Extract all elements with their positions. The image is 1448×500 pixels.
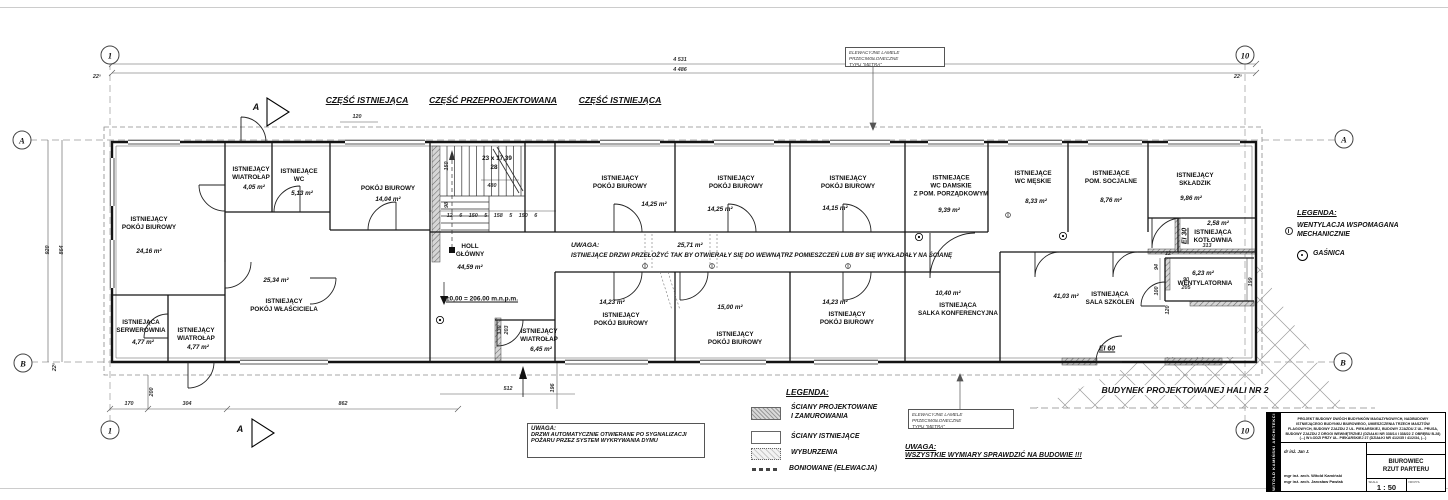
room-biurowy-a: ISTNIEJĄCY POKÓJ BIUROWY xyxy=(593,175,647,191)
scale-cell: SKALA 1 : 50 xyxy=(1366,478,1406,491)
scale-value: 1 : 50 xyxy=(1367,483,1406,492)
dim-120: 120 xyxy=(353,114,362,120)
room-salka-area: 10,40 m² xyxy=(935,290,960,298)
title-block: WITOLD KAMIŃSKI ARCHITEKCI PROJEKT BUDOW… xyxy=(1266,412,1446,492)
dim-top-inner: 4 486 xyxy=(673,67,687,73)
grid-bubble-a-right: A xyxy=(1335,130,1354,149)
dim-stair-row: 12 6 150 5 158 5 150 6 xyxy=(447,213,537,219)
room-wc-top-area: 5,13 m² xyxy=(291,190,313,198)
dim-512: 512 xyxy=(504,386,513,392)
room-biurowy-c: ISTNIEJĄCY POKÓJ BIUROWY xyxy=(821,175,875,191)
corridor-area: 25,71 m² xyxy=(677,242,702,250)
floor-plan-page: 1 10 1 10 A B A B A A CZĘŚĆ ISTNIEJĄCA C… xyxy=(0,0,1448,500)
room-biurowy-e: ISTNIEJĄCY POKÓJ BIUROWY xyxy=(708,331,762,347)
project-title: PROJEKT BUDOWY DWÓCH BUDYNKÓW MAGAZYNOWY… xyxy=(1280,413,1445,442)
lamele-callout-top: ELEWACYJNE LAMELE PRZECIWSŁONECZNE TYPU … xyxy=(845,47,945,67)
section-a-label-bottom: A xyxy=(237,424,244,434)
room-wlasciciela-area: 25,34 m² xyxy=(263,277,288,285)
grid-bubble-b-left: B xyxy=(14,354,33,373)
dim-stair-count: 28 xyxy=(490,164,497,172)
dim-stair-150: 150 xyxy=(444,162,450,171)
dim-862: 862 xyxy=(339,401,348,407)
dim-vent-12: 12 xyxy=(1165,251,1171,257)
room-wc-meskie-area: 8,33 m² xyxy=(1025,198,1047,206)
room-wc-damskie-area: 9,39 m² xyxy=(938,207,960,215)
dim-stair-480: 480 xyxy=(488,183,497,189)
room-serwerownia: ISTNIEJĄCA SERWEROWNIA xyxy=(116,319,165,335)
room-pokoj-1404-area: 14,04 m² xyxy=(375,196,400,204)
drawing-number-label: NR RYS. xyxy=(1409,480,1421,484)
room-biurowy-c-area: 14,15 m² xyxy=(822,205,847,213)
room-wiatrolap-top-area: 4,05 m² xyxy=(243,184,265,192)
plan-linework xyxy=(0,0,1448,500)
dim-left-inner: 864 xyxy=(59,246,65,255)
dim-vent-120: 120 xyxy=(1165,306,1171,315)
legend-walls-existing: ŚCIANY ISTNIEJĄCE xyxy=(791,433,859,442)
dim-304: 304 xyxy=(183,401,192,407)
legend-demolition: WYBURZENIA xyxy=(791,449,838,458)
grid-bubble-1-bottom: 1 xyxy=(101,421,120,440)
legend-walls-projected: ŚCIANY PROJEKTOWANE I ZAMUROWANIA xyxy=(791,404,877,421)
section-a-label-top: A xyxy=(253,102,260,112)
room-kotlownia-area: 2,58 m² xyxy=(1207,220,1229,228)
room-kotlownia: ISTNIEJĄCA KOTŁOWNIA xyxy=(1194,229,1233,245)
room-pom-socjalne-area: 8,76 m² xyxy=(1100,197,1122,205)
legend-vent-label: WENTYLACJA WSPOMAGANA MECHANICZNIE xyxy=(1297,222,1399,239)
legend-rusticated: BONIOWANE (ELEWACJA) xyxy=(789,465,877,474)
swatch-walls-existing xyxy=(751,431,781,444)
swatch-rusticated xyxy=(752,468,780,471)
room-pokoj-biurowy-24: ISTNIEJĄCY POKÓJ BIUROWY xyxy=(122,216,176,232)
room-sala-szkolen-area: 41,03 m² xyxy=(1053,293,1078,301)
level-note: ±0,00 = 206.00 m.n.p.m. xyxy=(446,296,518,303)
room-wiatrolap-left-area: 4,77 m² xyxy=(187,344,209,352)
extinguisher-symbol-icon xyxy=(1297,250,1308,261)
designers-2-3: mgr inż. arch. Witold Kamiński mgr inż. … xyxy=(1284,473,1343,485)
designers-cell: dr inż. Jan J. mgr inż. arch. Witold Kam… xyxy=(1280,442,1366,491)
room-wc-top: ISTNIEJĄCE WC xyxy=(280,168,317,184)
header-existing-right: CZĘŚĆ ISTNIEJĄCA xyxy=(579,95,662,105)
dim-wall-left-bottom: 22⁵ xyxy=(52,363,58,371)
dim-door-203: 203 xyxy=(504,326,510,335)
grid-bubble-b-right: B xyxy=(1334,353,1353,372)
dim-vent-94: 94 xyxy=(1154,264,1160,270)
room-biurowy-b: ISTNIEJĄCY POKÓJ BIUROWY xyxy=(709,175,763,191)
room-biurowy-b-area: 14,25 m² xyxy=(707,206,732,214)
dim-left-outer: 920 xyxy=(45,246,51,255)
room-sala-szkolen: ISTNIEJĄCA SALA SZKOLEŃ xyxy=(1086,291,1135,307)
room-biurowy-f: ISTNIEJĄCY POKÓJ BIUROWY xyxy=(820,311,874,327)
grid-bubble-a-left: A xyxy=(13,131,32,150)
header-existing-left: CZĘŚĆ ISTNIEJĄCA xyxy=(326,95,409,105)
fire-ei60-label: EI 60 xyxy=(1099,346,1115,353)
swatch-walls-projected xyxy=(751,407,781,420)
room-skladzik: ISTNIEJĄCY SKŁADZIK xyxy=(1176,172,1213,188)
dim-stair-run: 23 x 17,39 xyxy=(482,155,512,163)
legend-extinguisher-label: GAŚNICA xyxy=(1313,250,1345,259)
entrance-arrow xyxy=(519,366,527,397)
grid-bubble-10-bottom: 10 xyxy=(1236,421,1255,440)
check-note-body: WSZYSTKIE WYMIARY SPRAWDZIĆ NA BUDOWIE !… xyxy=(905,452,1082,459)
room-wentylatornia-area: 6,23 m² xyxy=(1192,270,1214,278)
room-wc-damskie: ISTNIEJĄCE WC DAMSKIE Z POM. PORZĄDKOWYM xyxy=(914,175,989,200)
designer-1: dr inż. Jan J. xyxy=(1284,449,1309,454)
room-wiatrolap-mid: ISTNIEJĄCY WIATROŁAP xyxy=(520,328,558,344)
object-cell xyxy=(1366,442,1445,454)
header-redesigned: CZĘŚĆ PRZEPROJEKTOWANA xyxy=(429,95,557,105)
room-serwerownia-area: 4,77 m² xyxy=(132,339,154,347)
drawing-number-cell: NR RYS. xyxy=(1406,478,1445,491)
dim-wall-top-left: 22⁵ xyxy=(93,74,101,80)
room-biurowy-d-area: 14,23 m² xyxy=(599,299,624,307)
dim-vent-100: 100 xyxy=(1154,287,1160,296)
check-note-title: UWAGA: xyxy=(905,442,936,451)
hala-nr2-label: BUDYNEK PROJEKTOWANEJ HALI NR 2 xyxy=(1100,385,1271,395)
room-salka: ISTNIEJĄCA SALKA KONFERENCYJNA xyxy=(918,302,998,318)
dim-170: 170 xyxy=(125,401,134,407)
doors-note-title: UWAGA: xyxy=(571,242,599,249)
dim-stair-98: 98 xyxy=(444,202,450,208)
grid-bubble-10-top: 10 xyxy=(1236,46,1255,65)
section-a-triangle-bottom xyxy=(252,419,274,447)
lamele-callout-bottom: ELEWACYJNE LAMELE PRZECIWSŁONECZNE TYPU … xyxy=(908,409,1014,429)
auto-doors-note-body: DRZWI AUTOMATYCZNIE OTWIERANE PO SYGNALI… xyxy=(531,432,701,444)
legend-right-title: LEGENDA: xyxy=(1297,208,1337,217)
dim-door-130: 130 xyxy=(497,326,503,335)
auto-doors-note-box: UWAGA: DRZWI AUTOMATYCZNIE OTWIERANE PO … xyxy=(527,423,705,458)
swatch-demolition xyxy=(751,448,781,460)
room-wlasciciela: ISTNIEJĄCY POKÓJ WŁAŚCICIELA xyxy=(250,298,318,314)
vent-markers xyxy=(643,213,1011,269)
room-pom-socjalne: ISTNIEJĄCE POM. SOCJALNE xyxy=(1085,170,1137,186)
room-biurowy-e-area: 15,00 m² xyxy=(717,304,742,312)
room-biurowy-a-area: 14,25 m² xyxy=(641,201,666,209)
vent-symbol-icon xyxy=(1285,227,1293,235)
room-wentylatornia: WENTYLATORNIA xyxy=(1178,280,1233,288)
firm-name: WITOLD KAMIŃSKI ARCHITEKCI xyxy=(1271,413,1276,491)
dim-196: 196 xyxy=(550,384,556,393)
dim-vent-199: 199 xyxy=(1248,278,1254,287)
room-wiatrolap-top: ISTNIEJĄCY WIATROŁAP xyxy=(232,166,270,182)
room-holl-glowny: HOLL GŁÓWNY xyxy=(456,243,484,259)
title-block-firm-strip: WITOLD KAMIŃSKI ARCHITEKCI xyxy=(1267,413,1280,491)
section-a-triangle-top xyxy=(267,98,289,126)
dim-wall-top-right: 22⁵ xyxy=(1234,74,1242,80)
room-holl-glowny-area: 44,59 m² xyxy=(457,264,482,272)
room-pokoj-biurowy-24-area: 24,16 m² xyxy=(136,248,161,256)
room-wc-meskie: ISTNIEJĄCE WC MĘSKIE xyxy=(1014,170,1051,186)
legend-bottom-title: LEGENDA: xyxy=(786,388,829,397)
room-wiatrolap-mid-area: 6,45 m² xyxy=(530,346,552,354)
room-wiatrolap-left: ISTNIEJĄCY WIATROŁAP xyxy=(177,327,215,343)
drawing-title: BIUROWIEC RZUT PARTERU xyxy=(1366,454,1445,478)
room-biurowy-d: ISTNIEJĄCY POKÓJ BIUROWY xyxy=(594,312,648,328)
room-biurowy-f-area: 14,23 m² xyxy=(822,299,847,307)
room-pokoj-1404: POKÓJ BIUROWY xyxy=(361,185,415,193)
dim-top-outer: 4 531 xyxy=(673,57,687,63)
grid-bubble-1-top: 1 xyxy=(101,46,120,65)
room-skladzik-area: 9,86 m² xyxy=(1180,195,1202,203)
doors-note-body: ISTNIEJĄCE DRZWI PRZEŁOŻYĆ TAK BY OTWIER… xyxy=(571,252,952,259)
fire-ei30-label: EI 30 xyxy=(1182,228,1189,244)
dim-200: 200 xyxy=(149,388,155,397)
